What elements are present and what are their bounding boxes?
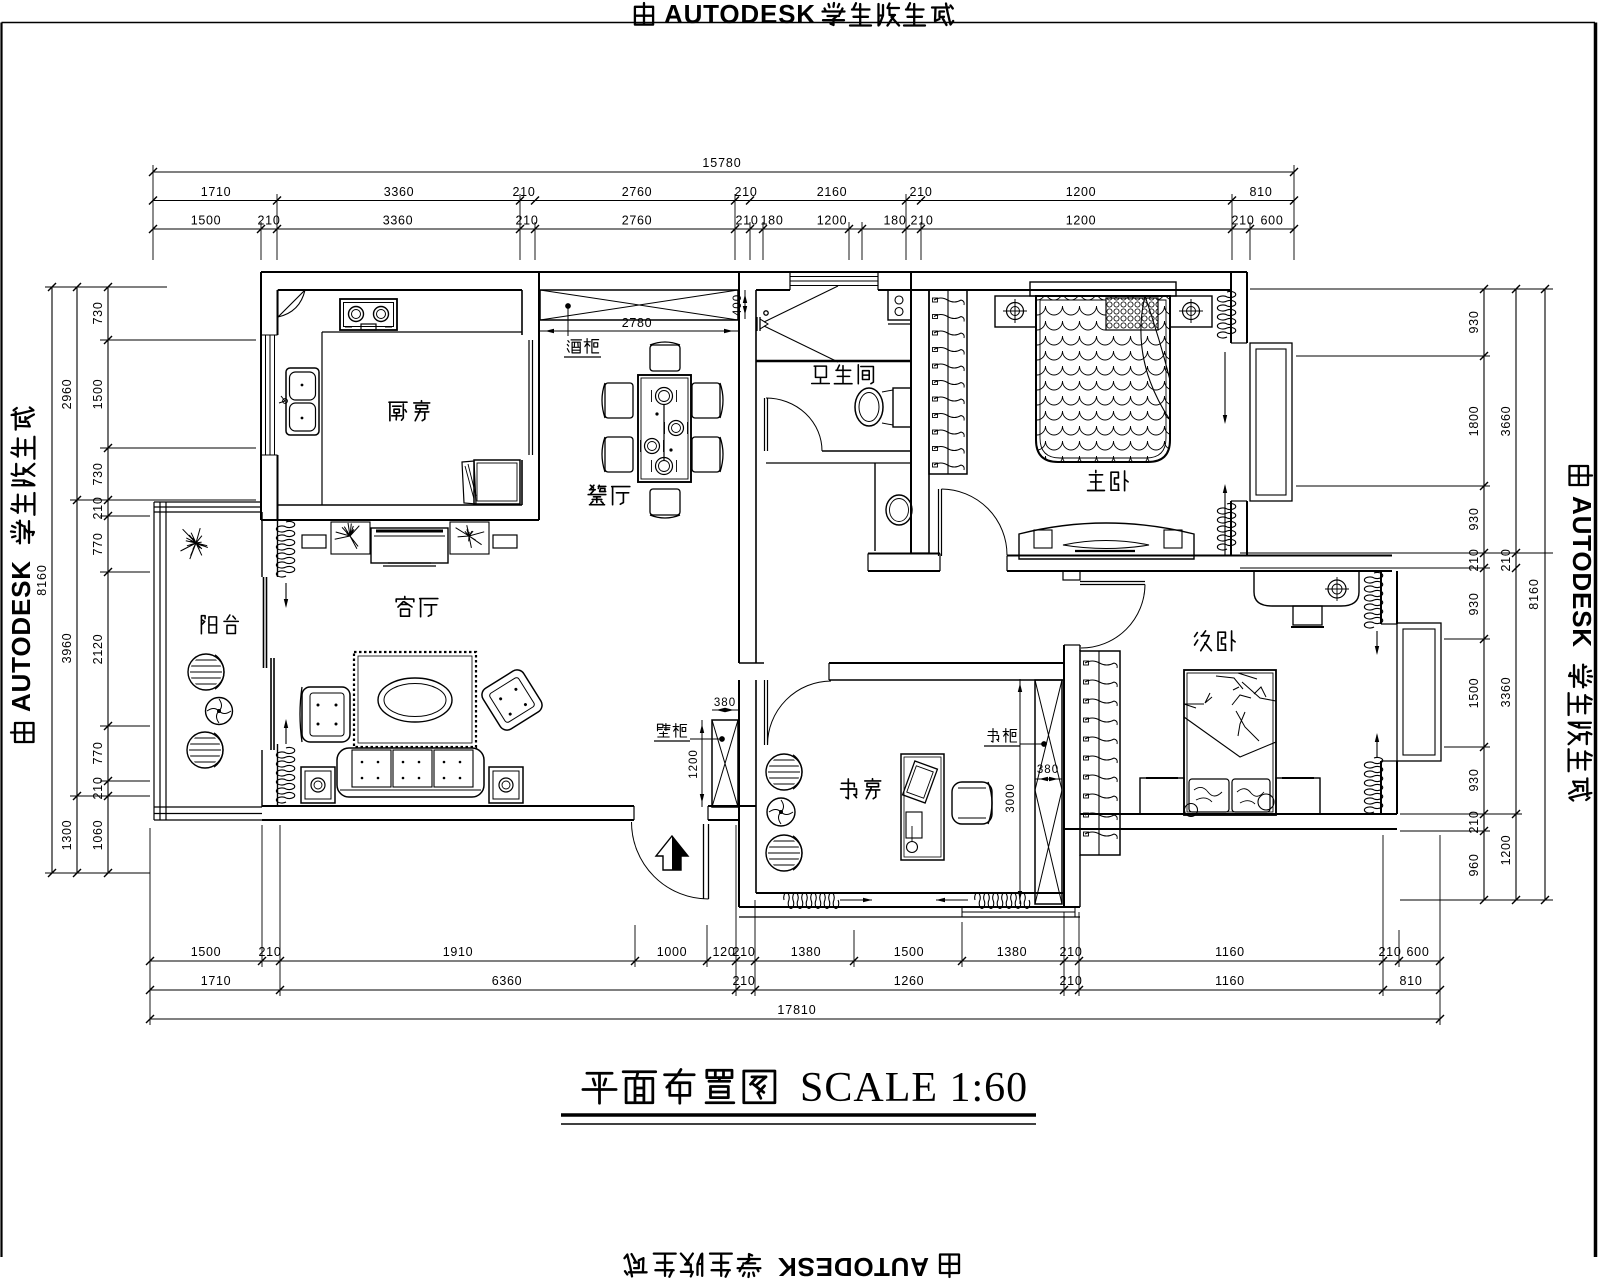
svg-text:770: 770 <box>91 742 105 765</box>
svg-text:1000: 1000 <box>657 945 688 959</box>
svg-text:AUTODESK: AUTODESK <box>1567 496 1597 648</box>
svg-text:930: 930 <box>1467 769 1481 792</box>
svg-text:210: 210 <box>1499 549 1513 572</box>
svg-text:600: 600 <box>1261 214 1284 228</box>
svg-text:1200: 1200 <box>1066 214 1097 228</box>
svg-text:810: 810 <box>1250 185 1273 199</box>
svg-text:AUTODESK: AUTODESK <box>6 560 36 712</box>
svg-text:210: 210 <box>735 185 758 199</box>
svg-text:730: 730 <box>91 302 105 325</box>
svg-text:15780: 15780 <box>702 156 741 170</box>
svg-text:8160: 8160 <box>35 564 49 595</box>
svg-text:730: 730 <box>91 463 105 486</box>
svg-text:2960: 2960 <box>60 379 74 410</box>
svg-text:AUTODESK: AUTODESK <box>664 0 816 29</box>
svg-text:17810: 17810 <box>777 1003 816 1017</box>
svg-text:1500: 1500 <box>894 945 925 959</box>
svg-text:1200: 1200 <box>1066 185 1097 199</box>
svg-text:210: 210 <box>736 214 759 228</box>
svg-text:210: 210 <box>911 214 934 228</box>
svg-text:6360: 6360 <box>492 974 523 988</box>
svg-text:600: 600 <box>1407 945 1430 959</box>
svg-text:1160: 1160 <box>1215 945 1245 959</box>
svg-text:3360: 3360 <box>384 185 415 199</box>
svg-text:180: 180 <box>884 214 907 228</box>
svg-text:1160: 1160 <box>1215 974 1245 988</box>
svg-text:3360: 3360 <box>383 214 414 228</box>
svg-text:1200: 1200 <box>688 749 700 779</box>
svg-text:960: 960 <box>1467 854 1481 877</box>
svg-text:1500: 1500 <box>1467 678 1481 709</box>
svg-text:1380: 1380 <box>997 945 1028 959</box>
svg-text:380: 380 <box>714 697 736 709</box>
svg-text:930: 930 <box>1467 508 1481 531</box>
svg-text:1910: 1910 <box>443 945 474 959</box>
svg-text:1500: 1500 <box>191 214 222 228</box>
svg-text:930: 930 <box>1467 311 1481 334</box>
svg-text:1500: 1500 <box>191 945 222 959</box>
svg-text:210: 210 <box>1379 945 1402 959</box>
svg-text:380: 380 <box>1037 764 1059 776</box>
svg-text:SCALE 1:60: SCALE 1:60 <box>800 1065 1028 1111</box>
svg-text:2160: 2160 <box>817 185 848 199</box>
svg-text:1200: 1200 <box>817 214 848 228</box>
svg-text:1710: 1710 <box>201 185 232 199</box>
svg-text:1300: 1300 <box>60 820 74 851</box>
svg-text:1710: 1710 <box>201 974 232 988</box>
svg-text:2760: 2760 <box>622 214 653 228</box>
svg-text:3960: 3960 <box>60 633 74 664</box>
svg-text:8160: 8160 <box>1527 578 1541 609</box>
svg-text:2780: 2780 <box>622 316 653 330</box>
svg-text:210: 210 <box>1232 214 1255 228</box>
svg-text:180: 180 <box>761 214 784 228</box>
svg-text:2760: 2760 <box>622 185 653 199</box>
svg-text:1380: 1380 <box>791 945 822 959</box>
svg-text:210: 210 <box>910 185 933 199</box>
svg-text:1200: 1200 <box>1499 835 1513 866</box>
svg-text:210: 210 <box>513 185 536 199</box>
svg-text:1260: 1260 <box>894 974 925 988</box>
svg-text:1500: 1500 <box>91 379 105 410</box>
svg-text:3000: 3000 <box>1005 783 1017 813</box>
svg-text:AUTODESK: AUTODESK <box>777 1252 929 1280</box>
svg-text:930: 930 <box>1467 593 1481 616</box>
svg-text:770: 770 <box>91 533 105 556</box>
svg-text:810: 810 <box>1400 974 1423 988</box>
svg-text:1060: 1060 <box>91 820 105 851</box>
svg-text:3360: 3360 <box>1499 677 1513 708</box>
svg-text:1800: 1800 <box>1467 406 1481 437</box>
svg-text:3660: 3660 <box>1499 406 1513 437</box>
svg-text:2120: 2120 <box>91 634 105 665</box>
svg-text:400: 400 <box>732 294 744 316</box>
